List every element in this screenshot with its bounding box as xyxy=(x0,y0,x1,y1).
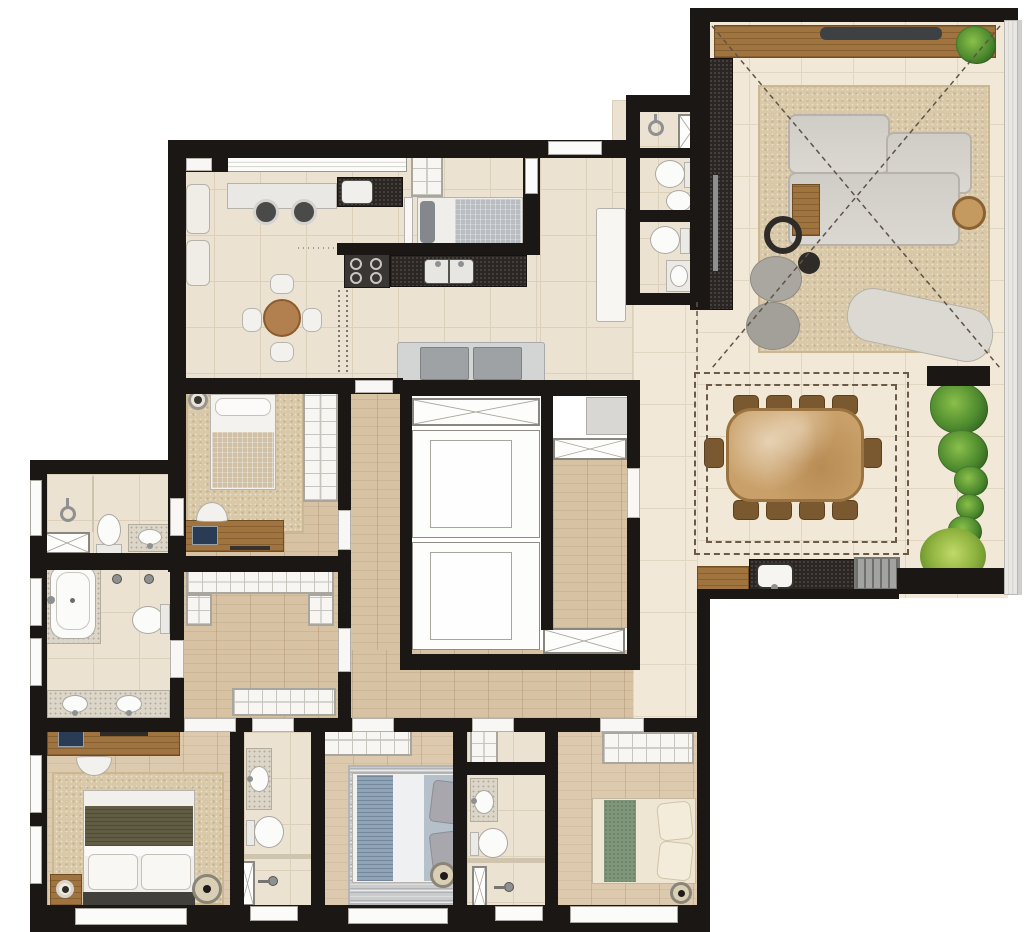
door xyxy=(184,718,236,732)
tub-drain xyxy=(70,598,75,603)
vanity-faucet xyxy=(72,710,78,716)
wall xyxy=(697,8,1018,22)
door xyxy=(338,628,351,672)
window xyxy=(548,141,602,155)
kitchen-window-band xyxy=(227,157,407,172)
laundry-counter xyxy=(227,183,337,209)
shower-hose xyxy=(494,886,506,889)
maid-wardrobe xyxy=(411,155,443,197)
kitchen-tall-cabinet xyxy=(186,184,210,234)
master-blanket xyxy=(85,806,193,846)
floor-plan xyxy=(0,0,1024,932)
entry-door xyxy=(627,468,640,518)
shower-head xyxy=(60,506,76,522)
console-plant xyxy=(956,26,996,64)
right-wardrobe xyxy=(602,732,694,764)
window xyxy=(250,906,298,921)
wall xyxy=(400,380,412,670)
closet-shelf-top xyxy=(186,570,334,594)
breakfast-chair xyxy=(270,274,294,294)
breakfast-chair xyxy=(242,308,262,332)
wall xyxy=(627,396,640,470)
stove-burner xyxy=(350,258,362,270)
maid-bed-pillow xyxy=(420,201,435,243)
toilet-bowl xyxy=(254,816,284,848)
kitchen-sink-top xyxy=(341,180,373,204)
wall xyxy=(467,762,558,775)
lavabo-sink xyxy=(670,265,688,287)
bathA-duct xyxy=(44,532,90,554)
vanity-faucet xyxy=(126,710,132,716)
stove-burner xyxy=(350,272,362,284)
master-floor-lamp-dot xyxy=(203,885,211,893)
shower-knob xyxy=(112,574,122,584)
sink-divider xyxy=(448,260,450,283)
shaft-room xyxy=(586,397,628,435)
toilet-tank xyxy=(680,228,690,254)
floor-lamp-shade xyxy=(764,216,802,254)
terrace-railing-outer xyxy=(1018,20,1022,595)
wall xyxy=(697,589,899,599)
closet-shelf-bottom xyxy=(232,688,336,716)
bedroom1-wardrobe xyxy=(303,386,338,502)
wall xyxy=(168,556,338,572)
toilet-bowl xyxy=(478,828,508,858)
tv xyxy=(820,27,942,40)
terrace-plant xyxy=(954,466,988,496)
wall xyxy=(690,8,710,310)
terrace-plant xyxy=(930,382,988,434)
bath2-duct xyxy=(472,866,487,908)
bedroom1-pillow xyxy=(215,398,271,416)
door xyxy=(252,718,294,732)
wall xyxy=(338,550,351,628)
pouf-2 xyxy=(746,302,800,350)
elevator-1-cabin xyxy=(430,440,512,528)
window xyxy=(348,908,448,924)
right-floor-lamp-dot xyxy=(678,890,685,897)
right-pillow xyxy=(656,800,694,841)
wall xyxy=(400,654,640,670)
door xyxy=(600,718,644,732)
tv-wall-handle xyxy=(713,175,718,271)
door xyxy=(472,718,514,732)
toilet-bowl xyxy=(650,226,680,254)
closet-shelf-right xyxy=(308,594,334,626)
corridor-floor-vertical xyxy=(343,390,403,670)
bathA-faucet xyxy=(147,543,153,549)
bidet xyxy=(666,190,692,212)
wall xyxy=(927,366,990,386)
wall xyxy=(633,148,697,158)
bedroom1-blanket xyxy=(212,432,274,488)
right-bed-runner xyxy=(604,800,636,882)
breakfast-chair xyxy=(270,342,294,362)
bedroom1-laptop xyxy=(192,526,218,545)
terrace-boundary-inner xyxy=(706,384,897,543)
toilet-tank xyxy=(160,604,170,634)
social-hall-floor xyxy=(633,300,697,718)
toilet-bowl xyxy=(655,160,685,188)
svc-shower-arm xyxy=(654,114,657,122)
service-door xyxy=(186,158,212,171)
wall xyxy=(627,518,640,670)
grill xyxy=(854,557,900,590)
round-side-table xyxy=(952,196,986,230)
maid-door xyxy=(404,197,413,247)
wall xyxy=(30,460,170,474)
breakfast-table xyxy=(263,299,301,337)
elevator-2-cabin xyxy=(430,552,512,640)
sofa-back-left xyxy=(788,114,890,174)
laundry-basin xyxy=(253,199,279,225)
wall xyxy=(311,732,325,905)
wall xyxy=(697,592,710,932)
kitchen-faucet xyxy=(458,261,464,267)
window xyxy=(30,480,42,536)
wall xyxy=(230,732,244,905)
corridor-duct xyxy=(543,628,625,654)
bedroom1-desk-item xyxy=(230,546,270,550)
tub-faucet xyxy=(47,596,55,604)
floor-lamp-base xyxy=(798,252,820,274)
svc-shower-head xyxy=(648,120,664,136)
window xyxy=(75,908,187,925)
door xyxy=(170,498,184,536)
elevator-hall-floor xyxy=(553,460,627,628)
pouf-1 xyxy=(750,256,802,302)
window xyxy=(525,158,538,194)
wall xyxy=(897,568,1008,594)
wall xyxy=(626,95,640,305)
shower-hose xyxy=(258,880,270,883)
master-table-lamp-dot xyxy=(62,886,69,893)
right-pillow xyxy=(656,840,694,881)
wall xyxy=(338,378,351,510)
shower-knob xyxy=(144,574,154,584)
hall-sofa-panel xyxy=(473,347,522,380)
wall xyxy=(337,243,540,255)
wall xyxy=(400,380,640,396)
stove-burner xyxy=(370,272,382,284)
hall-sofa-panel xyxy=(420,347,469,380)
window xyxy=(30,826,42,884)
laundry-basin xyxy=(291,199,317,225)
middle-bed-throw xyxy=(357,775,393,881)
wall xyxy=(541,396,553,630)
hall-cabinet xyxy=(596,208,626,322)
middle-floor-lamp-dot xyxy=(440,872,448,880)
kitchen-faucet xyxy=(435,261,441,267)
elevator-hall-duct xyxy=(553,438,627,460)
bath2-divider xyxy=(467,858,545,863)
window xyxy=(495,906,543,921)
window xyxy=(570,906,678,923)
master-pillow xyxy=(88,854,138,890)
kitchen-tall-cabinet xyxy=(186,240,210,286)
wall xyxy=(338,672,351,718)
closet-shelf-left xyxy=(186,594,212,626)
door xyxy=(355,380,393,393)
door xyxy=(338,510,351,550)
shower-arm xyxy=(66,498,69,508)
toilet-bowl xyxy=(97,514,121,546)
terrace-railing xyxy=(1004,20,1018,595)
wall xyxy=(633,210,697,222)
window xyxy=(30,755,42,813)
breakfast-chair xyxy=(302,308,322,332)
bath2-faucet xyxy=(471,798,477,804)
middle-bed-quilt xyxy=(394,775,424,881)
door xyxy=(170,640,184,678)
elevator-lobby-duct xyxy=(412,398,540,426)
window xyxy=(30,638,42,686)
bedroom1-lamp-dot xyxy=(194,396,202,404)
door xyxy=(352,718,394,732)
master-pillow xyxy=(141,854,191,890)
window xyxy=(30,578,42,626)
wall xyxy=(545,718,558,905)
tv-stone-wall xyxy=(708,58,733,310)
bath1-divider xyxy=(244,854,311,859)
stove-burner xyxy=(370,258,382,270)
maid-bed-blanket xyxy=(455,199,521,245)
master-headboard xyxy=(83,892,195,906)
bath2-sink xyxy=(474,790,494,814)
bathA-partition xyxy=(92,476,94,532)
wall xyxy=(30,553,184,570)
wall xyxy=(453,718,467,905)
bath1-faucet xyxy=(247,776,253,782)
